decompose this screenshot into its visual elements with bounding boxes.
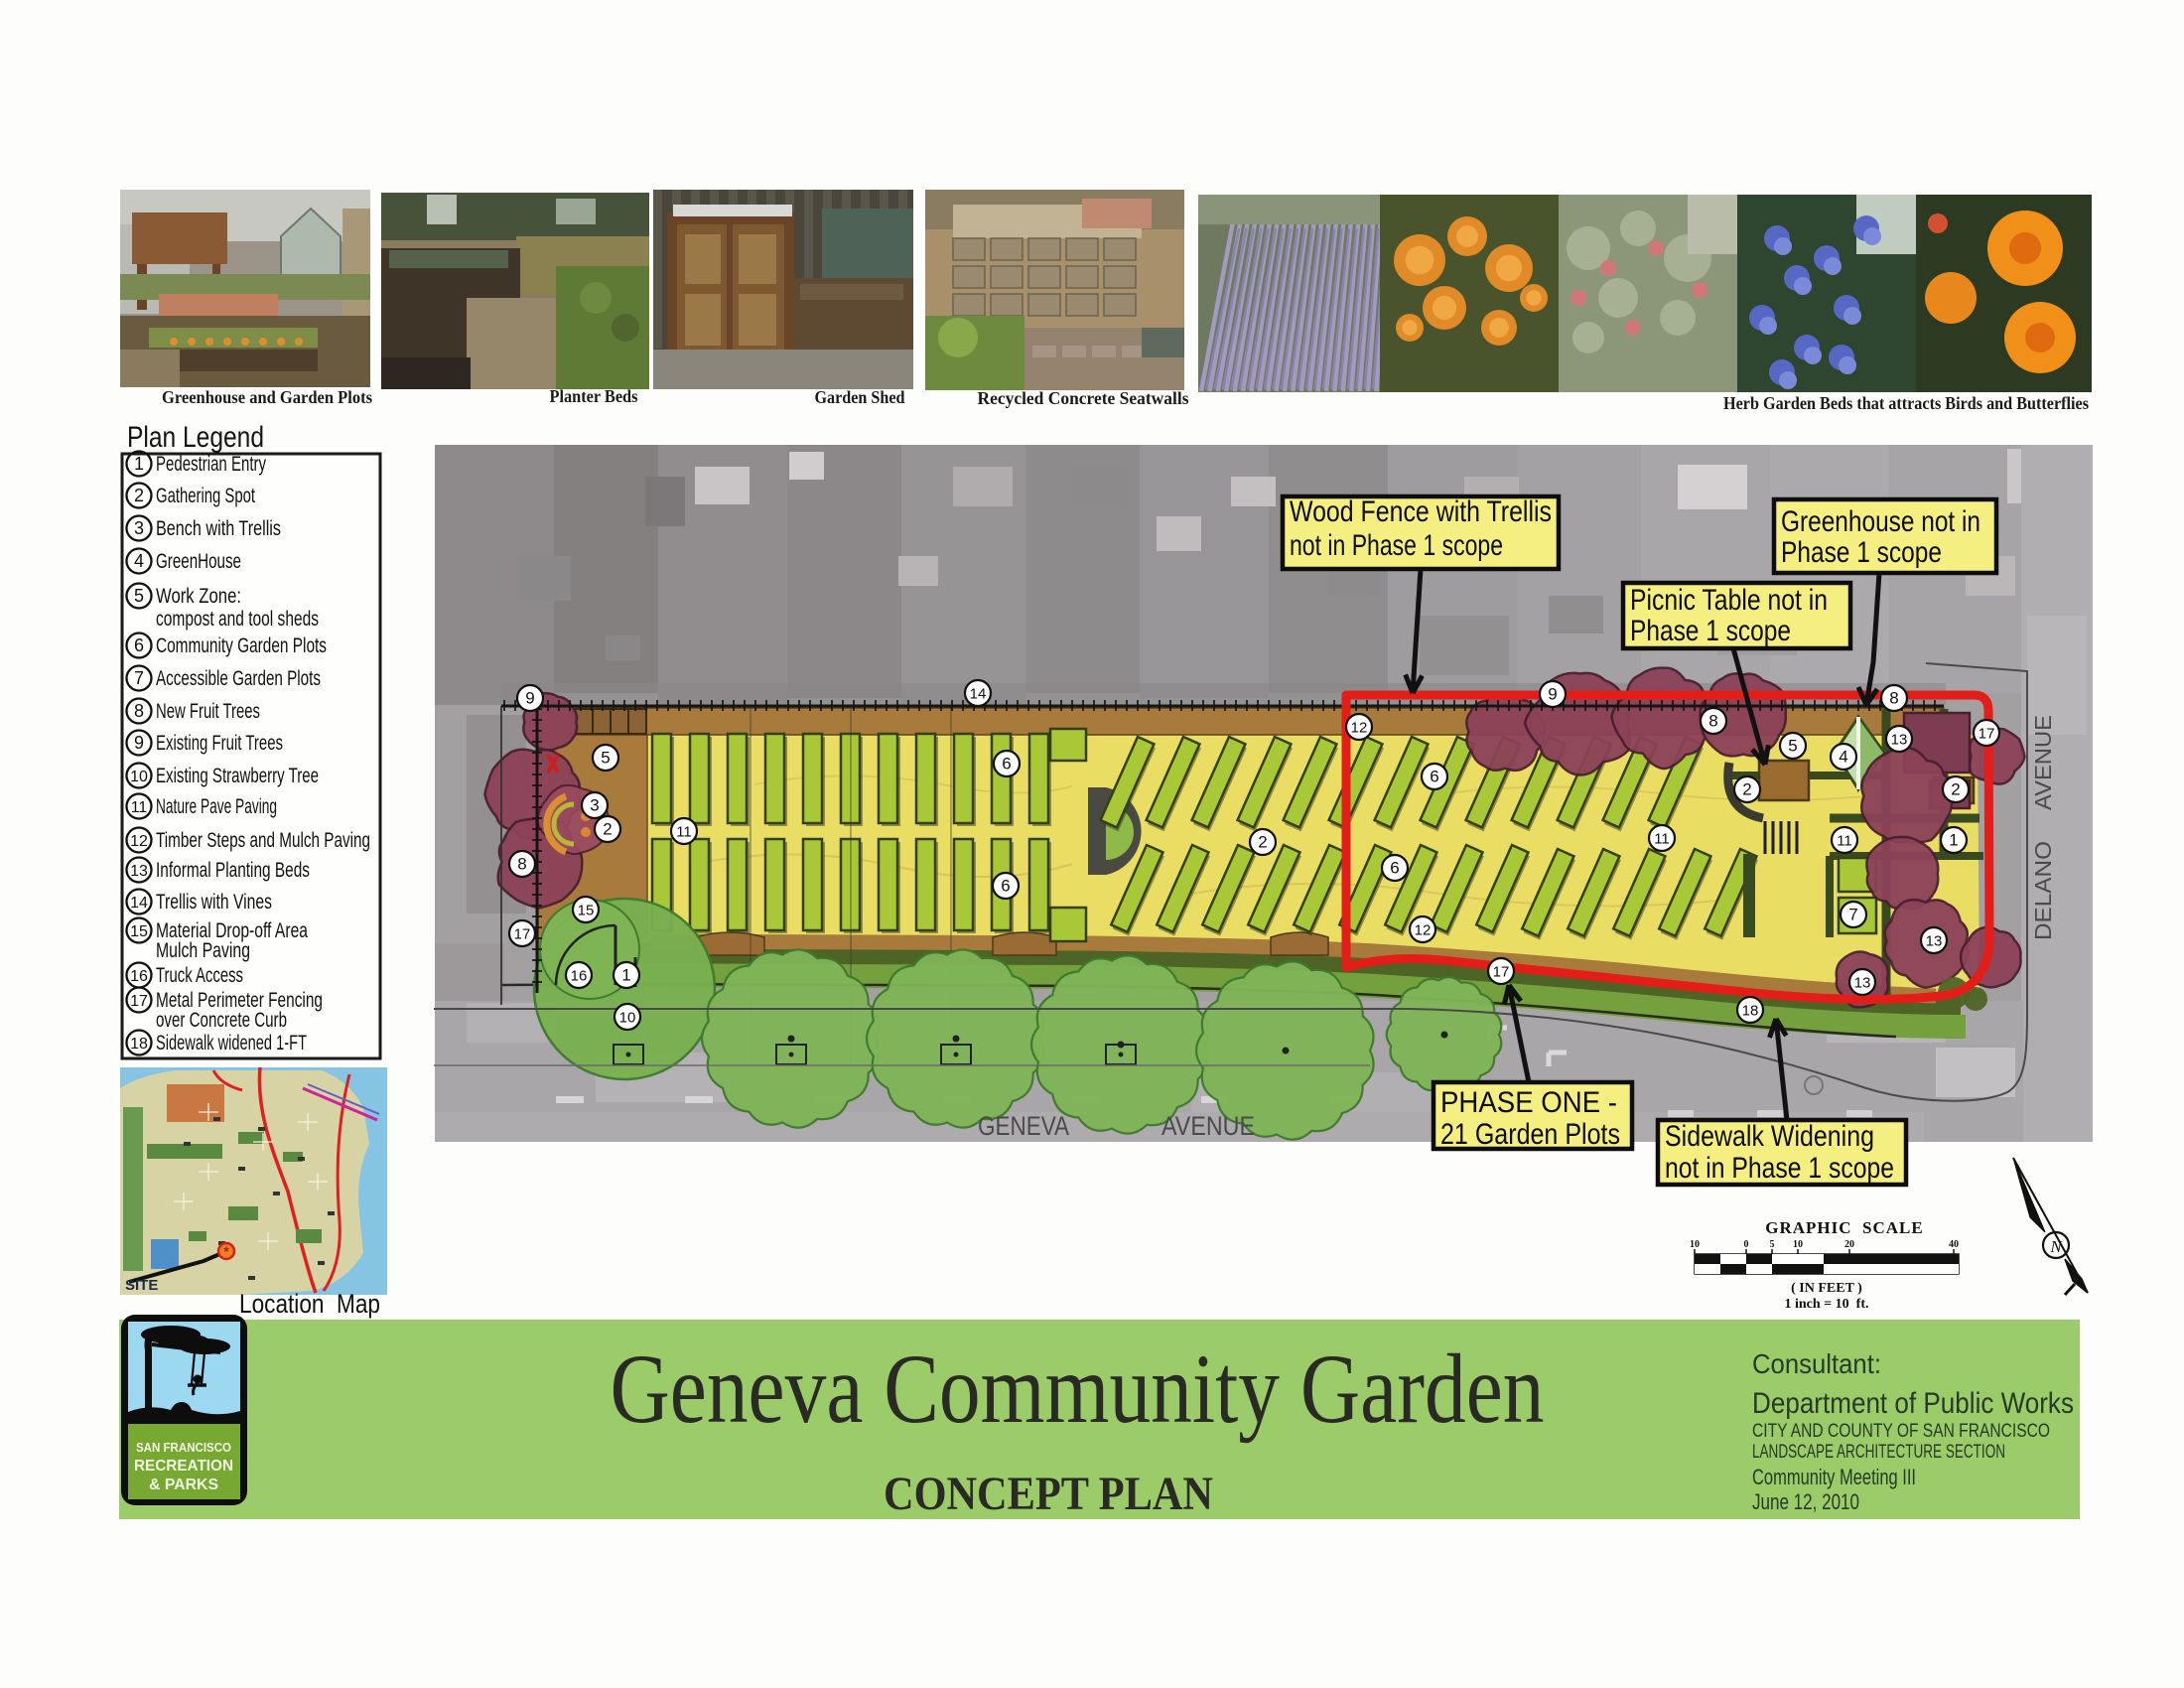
svg-text:2: 2 [1258,833,1267,852]
svg-text:3: 3 [134,518,144,538]
svg-text:( IN FEET ): ( IN FEET ) [1791,1281,1862,1296]
svg-text:CITY AND COUNTY OF SAN FRANCIS: CITY AND COUNTY OF SAN FRANCISCO [1752,1420,2050,1442]
svg-text:PHASE ONE -: PHASE ONE - [1440,1086,1617,1119]
svg-text:Community Garden Plots: Community Garden Plots [156,634,327,657]
svg-text:not in Phase 1 scope: not in Phase 1 scope [1665,1152,1894,1185]
svg-text:5: 5 [1788,737,1797,756]
svg-text:21 Garden Plots: 21 Garden Plots [1440,1118,1620,1151]
svg-text:8: 8 [1889,689,1898,708]
svg-text:15: 15 [578,903,595,919]
svg-text:SITE: SITE [125,1277,158,1294]
svg-text:40: 40 [1949,1239,1959,1250]
svg-text:GRAPHIC SCALE: GRAPHIC SCALE [1765,1218,1923,1237]
svg-text:16: 16 [130,968,148,985]
svg-text:6: 6 [1002,755,1011,774]
svg-text:11: 11 [1837,833,1852,850]
svg-text:*: * [223,1243,229,1259]
svg-text:Truck Access: Truck Access [156,964,243,987]
svg-text:CONCEPT PLAN: CONCEPT PLAN [884,1468,1213,1520]
svg-text:0: 0 [1744,1239,1749,1250]
svg-text:14: 14 [970,686,987,703]
svg-text:6: 6 [134,635,144,655]
svg-text:Informal Planting Beds: Informal Planting Beds [156,859,310,882]
svg-text:& PARKS: & PARKS [149,1477,218,1493]
svg-text:10: 10 [619,1010,636,1027]
svg-text:Work Zone:: Work Zone: [156,585,241,608]
svg-text:13: 13 [1854,975,1871,992]
svg-text:Recycled Concrete Seatwalls: Recycled Concrete Seatwalls [978,388,1189,408]
svg-text:RECREATION: RECREATION [134,1458,233,1475]
svg-text:Greenhouse not in: Greenhouse not in [1781,505,1980,538]
svg-text:5: 5 [134,586,144,606]
svg-text:18: 18 [130,1036,148,1053]
svg-text:10: 10 [1690,1239,1700,1250]
svg-text:17: 17 [130,993,148,1010]
svg-text:Community Meeting III: Community Meeting III [1752,1465,1916,1489]
svg-text:Existing Fruit Trees: Existing Fruit Trees [156,732,283,755]
svg-text:Pedestrian Entry: Pedestrian Entry [156,453,266,476]
svg-text:Accessible Garden Plots: Accessible Garden Plots [156,667,321,690]
svg-text:Bench with Trellis: Bench with Trellis [156,517,281,540]
svg-text:over Concrete Curb: over Concrete Curb [156,1009,287,1032]
svg-text:Planter Beds: Planter Beds [550,386,638,406]
svg-text:18: 18 [1742,1003,1759,1020]
svg-text:Trellis with Vines: Trellis with Vines [156,891,272,914]
svg-text:13: 13 [130,863,148,880]
svg-text:1: 1 [1949,831,1958,850]
svg-text:1: 1 [134,454,144,474]
svg-text:Location Map: Location Map [239,1289,380,1319]
svg-text:not in Phase 1 scope: not in Phase 1 scope [1290,529,1503,562]
svg-text:GreenHouse: GreenHouse [156,550,241,573]
svg-text:5: 5 [601,749,610,768]
svg-text:1: 1 [621,966,630,985]
svg-text:Consultant:: Consultant: [1752,1348,1881,1379]
svg-text:2: 2 [134,486,144,505]
svg-text:Existing Strawberry Tree: Existing Strawberry Tree [156,765,319,787]
svg-text:4: 4 [1839,748,1847,767]
svg-text:11: 11 [131,799,148,816]
svg-text:9: 9 [525,689,534,708]
svg-text:Greenhouse and Garden Plots: Greenhouse and Garden Plots [162,387,372,407]
svg-text:Sidewalk widened 1-FT: Sidewalk widened 1-FT [156,1032,307,1055]
svg-text:Garden Shed: Garden Shed [815,387,905,407]
svg-text:Herb Garden Beds that attracts: Herb Garden Beds that attracts Birds and… [1723,393,2089,413]
svg-text:4: 4 [134,551,144,571]
svg-text:17: 17 [514,926,531,943]
svg-text:compost and tool sheds: compost and tool sheds [156,608,319,631]
svg-text:AVENUE: AVENUE [1161,1111,1255,1141]
svg-text:6: 6 [1430,768,1438,786]
svg-text:GENEVA: GENEVA [978,1111,1069,1141]
svg-text:17: 17 [1493,964,1510,981]
svg-text:2: 2 [1742,780,1751,799]
svg-text:6: 6 [1001,877,1010,896]
svg-text:8: 8 [517,855,526,874]
svg-text:June 12, 2010: June 12, 2010 [1752,1489,1859,1514]
svg-text:Timber Steps and Mulch Paving: Timber Steps and Mulch Paving [156,829,370,852]
svg-text:3: 3 [590,796,599,815]
svg-text:5: 5 [1770,1239,1775,1250]
svg-text:Wood Fence with Trellis: Wood Fence with Trellis [1290,495,1552,528]
svg-text:12: 12 [1415,922,1432,939]
svg-text:17: 17 [1979,726,1995,743]
svg-text:Nature Pave Paving: Nature Pave Paving [156,795,277,818]
svg-text:7: 7 [1848,906,1857,924]
svg-text:Phase 1 scope: Phase 1 scope [1781,536,1942,569]
svg-text:9: 9 [134,733,144,753]
svg-text:12: 12 [1351,720,1368,737]
svg-text:DELANO: DELANO [2030,841,2056,940]
svg-text:10: 10 [130,769,148,785]
svg-text:Sidewalk Widening: Sidewalk Widening [1665,1120,1874,1153]
svg-text:11: 11 [1654,831,1670,848]
svg-text:2: 2 [1951,780,1960,799]
svg-text:13: 13 [1926,933,1943,950]
svg-text:Phase 1 scope: Phase 1 scope [1630,615,1791,647]
svg-text:New Fruit Trees: New Fruit Trees [156,700,260,723]
svg-text:Plan Legend: Plan Legend [127,421,264,454]
svg-text:14: 14 [130,895,148,912]
svg-text:7: 7 [134,668,144,688]
svg-text:16: 16 [571,968,588,985]
svg-text:11: 11 [676,824,692,841]
svg-text:AVENUE: AVENUE [2030,715,2056,810]
svg-text:Gathering Spot: Gathering Spot [156,485,255,507]
svg-text:1 inch = 10 ft.: 1 inch = 10 ft. [1785,1297,1869,1312]
svg-text:8: 8 [1708,712,1717,731]
svg-text:SAN FRANCISCO: SAN FRANCISCO [136,1441,231,1455]
svg-text:Mulch Paving: Mulch Paving [156,939,250,962]
svg-text:6: 6 [1390,859,1399,878]
svg-text:2: 2 [603,820,612,839]
svg-text:LANDSCAPE ARCHITECTURE SECTION: LANDSCAPE ARCHITECTURE SECTION [1752,1441,2005,1463]
svg-text:Department of Public Works: Department of Public Works [1752,1387,2074,1420]
svg-text:15: 15 [130,923,148,940]
svg-text:12: 12 [130,833,148,850]
svg-text:N: N [2049,1237,2063,1256]
svg-text:Picnic Table not in: Picnic Table not in [1630,584,1828,617]
svg-text:8: 8 [134,701,144,721]
svg-text:20: 20 [1844,1239,1854,1250]
svg-text:10: 10 [1793,1239,1803,1250]
svg-text:13: 13 [1891,732,1908,749]
svg-text:9: 9 [1548,685,1557,704]
svg-text:Geneva Community Garden: Geneva Community Garden [611,1334,1545,1444]
